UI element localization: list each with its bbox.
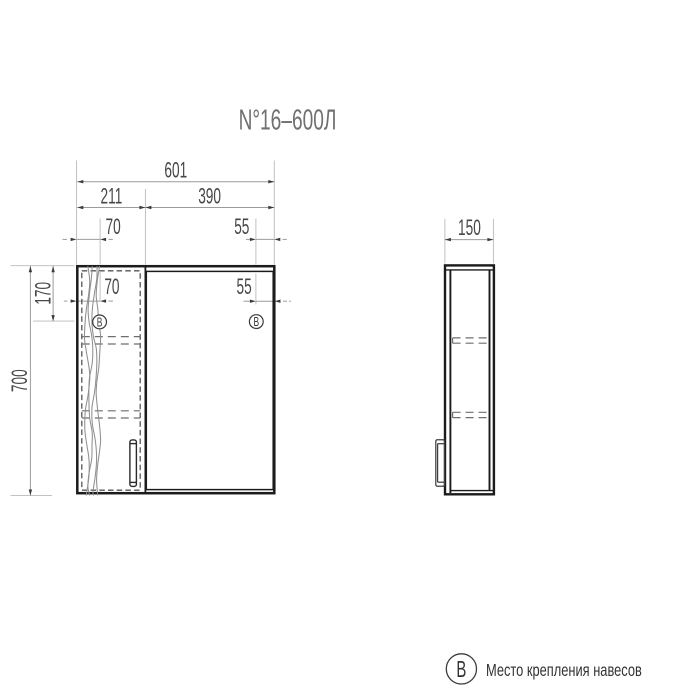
svg-text:70: 70 bbox=[106, 214, 121, 239]
svg-text:70: 70 bbox=[104, 274, 119, 299]
svg-text:601: 601 bbox=[164, 157, 187, 182]
svg-text:В: В bbox=[456, 657, 466, 683]
svg-text:390: 390 bbox=[198, 183, 221, 208]
svg-text:211: 211 bbox=[101, 183, 123, 208]
svg-text:55: 55 bbox=[237, 274, 252, 299]
svg-text:55: 55 bbox=[234, 214, 249, 239]
svg-text:700: 700 bbox=[7, 369, 32, 392]
svg-text:Место крепления навесов: Место крепления навесов bbox=[486, 661, 642, 680]
svg-text:150: 150 bbox=[458, 215, 481, 240]
svg-text:В: В bbox=[97, 316, 103, 330]
svg-text:В: В bbox=[253, 315, 259, 329]
svg-text:N°16–600Л: N°16–600Л bbox=[239, 105, 337, 137]
svg-text:170: 170 bbox=[30, 282, 55, 305]
